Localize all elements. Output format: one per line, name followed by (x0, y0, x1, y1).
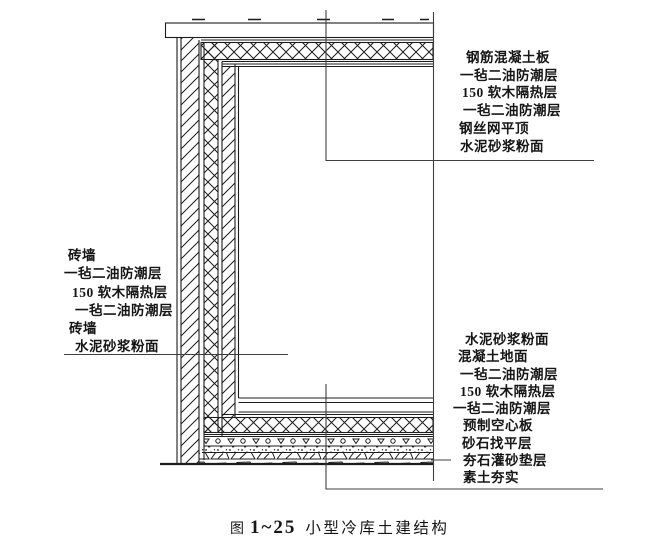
floor-label-leveling: 砂石找平层 (462, 435, 558, 452)
floor-label-felt-upper: 一毡二油防潮层 (460, 366, 558, 383)
wall-cork-insulation (204, 43, 218, 433)
wall-label-felt-inner: 一毡二油防潮层 (75, 302, 173, 320)
ceiling-label-plaster: 水泥砂浆粉面 (460, 138, 561, 156)
floor-sand-gravel-leveling (202, 446, 433, 453)
wall-label-brick-outer: 砖墙 (68, 247, 173, 265)
floor-precast-hollow-board (204, 437, 433, 447)
ceiling-label-felt-lower: 一毡二油防潮层 (463, 102, 561, 120)
wall-label-brick-inner: 砖墙 (69, 320, 173, 338)
ceiling-mesh-plaster-lines (222, 62, 433, 67)
floor-label-stone-cushion: 夯石灌砂垫层 (463, 452, 558, 469)
wall-outer-brick (181, 38, 199, 463)
ceiling-label-block: 钢筋混凝土板 一毡二油防潮层 150 软木隔热层 一毡二油防潮层 钢丝网平顶 水… (459, 49, 561, 155)
ceiling-label-rc-board: 钢筋混凝土板 (466, 49, 561, 67)
ceiling-cork-insulation-band (201, 43, 433, 60)
wall-label-block: 砖墙 一毡二油防潮层 150 软木隔热层 一毡二油防潮层 砖墙 水泥砂浆粉面 (64, 247, 173, 357)
caption-figure-word: 图 (230, 518, 245, 538)
caption-title: 小型冷库土建结构 (305, 516, 449, 538)
floor-label-concrete: 混凝土地面 (458, 348, 558, 365)
figure-caption: 图 1~25 小型冷库土建结构 (230, 516, 449, 539)
wall-label-felt-outer: 一毡二油防潮层 (64, 265, 173, 283)
ceiling-label-wire-mesh: 钢丝网平顶 (459, 120, 561, 138)
roof-slab (166, 20, 434, 38)
floor-cork-insulation-band (204, 418, 433, 433)
floor-label-felt-lower: 一毡二油防潮层 (453, 400, 558, 417)
floor-felt-lower (204, 435, 433, 437)
floor-tamped-stone-cushion (199, 453, 433, 465)
floor-label-mortar-finish: 水泥砂浆粉面 (465, 331, 558, 348)
floor-label-cork: 150 软木隔热层 (460, 383, 558, 400)
floor-label-compacted-soil: 素土夯实 (463, 469, 558, 486)
wall-label-plaster: 水泥砂浆粉面 (75, 338, 173, 356)
ceiling-label-felt-upper: 一毡二油防潮层 (460, 67, 561, 85)
ceiling-label-cork: 150 软木隔热层 (462, 84, 561, 102)
wall-outer-face (177, 38, 181, 465)
floor-mortar-finish (239, 398, 434, 403)
floor-label-block: 水泥砂浆粉面 混凝土地面 一毡二油防潮层 150 软木隔热层 一毡二油防潮层 预… (453, 331, 558, 487)
wall-label-cork: 150 软木隔热层 (72, 284, 173, 302)
wall-inner-brick (222, 64, 235, 418)
caption-figure-number: 1~25 (250, 517, 296, 539)
figure-page: 砖墙 一毡二油防潮层 150 软木隔热层 一毡二油防潮层 砖墙 水泥砂浆粉面 钢… (0, 0, 663, 549)
floor-label-precast-board: 预制空心板 (463, 417, 558, 434)
